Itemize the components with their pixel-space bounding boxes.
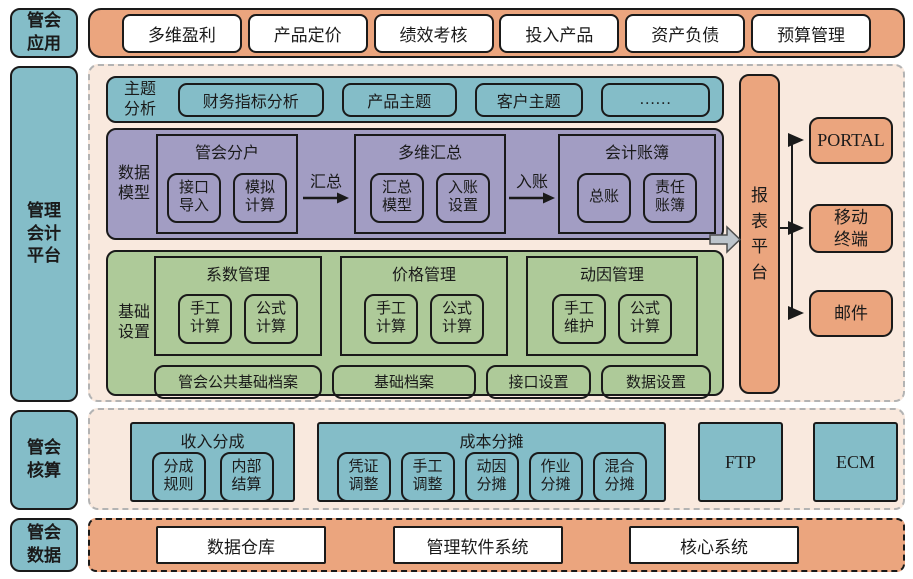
arrow-label: 汇总	[310, 174, 342, 192]
output-box-mobile-terminal: 移动 终端	[809, 204, 893, 253]
row-label-mgmt-calculation: 管会 核算	[10, 410, 78, 510]
chip-voucher-adjust: 凭证 调整	[337, 452, 391, 502]
app-box-input-product: 投入产品	[499, 14, 619, 53]
group-title: 动因管理	[580, 261, 644, 285]
chip-formula-calc: 公式 计算	[430, 294, 484, 344]
footer-item-data-setup: 数据设置	[601, 365, 711, 399]
arrow-label: 入账	[516, 174, 548, 192]
architecture-diagram: 管会 应用 管理 会计 平台 管会 核算 管会 数据 多维盈利 产品定价 绩效考…	[0, 0, 913, 579]
group-cost-allocation: 成本分摊 凭证 调整 手工 调整 动因 分摊 作业 分摊 混合 分摊	[317, 422, 666, 502]
group-title: 管会分户	[195, 139, 259, 163]
chip-formula-calc: 公式 计算	[244, 294, 298, 344]
row-label-mgmt-applications: 管会 应用	[10, 8, 78, 58]
right-arrow-icon	[509, 192, 555, 204]
theme-analysis-bar: 主题 分析 财务指标分析 产品主题 客户主题 ……	[106, 76, 724, 123]
report-output-connectors	[780, 96, 810, 346]
chip-posting-setup: 入账 设置	[436, 173, 490, 223]
platform-panel: 主题 分析 财务指标分析 产品主题 客户主题 …… 数据 模型 管会分户 接口 …	[88, 64, 905, 402]
footer-item-interface-setup: 接口设置	[486, 365, 591, 399]
applications-bar: 多维盈利 产品定价 绩效考核 投入产品 资产负债 预算管理	[88, 8, 905, 58]
chip-manual-calc: 手工 计算	[364, 294, 418, 344]
theme-analysis-label: 主题 分析	[120, 80, 160, 120]
theme-item-financial-indicators: 财务指标分析	[178, 83, 324, 117]
group-title: 系数管理	[206, 261, 270, 285]
chip-summary-model: 汇总 模型	[370, 173, 424, 223]
app-box-multidim-profit: 多维盈利	[122, 14, 242, 53]
box-ftp: FTP	[698, 422, 783, 502]
data-model-panel: 数据 模型 管会分户 接口 导入 模拟 计算 汇总 多维汇总 汇总 模型	[106, 128, 724, 240]
chip-manual-adjust: 手工 调整	[401, 452, 455, 502]
app-box-performance-eval: 绩效考核	[374, 14, 494, 53]
theme-item-customer-theme: 客户主题	[475, 83, 583, 117]
chip-sharing-rules: 分成 规则	[152, 452, 206, 502]
chip-manual-maintain: 手工 维护	[552, 294, 606, 344]
output-box-portal: PORTAL	[809, 117, 893, 164]
group-title: 价格管理	[392, 261, 456, 285]
source-box-mgmt-software-system: 管理软件系统	[393, 526, 563, 564]
group-revenue-sharing: 收入分成 分成 规则 内部 结算	[130, 422, 295, 502]
group-title: 成本分摊	[459, 428, 523, 452]
group-driver-mgmt: 动因管理 手工 维护 公式 计算	[526, 256, 698, 356]
group-coefficient-mgmt: 系数管理 手工 计算 公式 计算	[154, 256, 322, 356]
chip-internal-settlement: 内部 结算	[220, 452, 274, 502]
chip-manual-calc: 手工 计算	[178, 294, 232, 344]
base-settings-label: 基础 设置	[114, 303, 154, 343]
base-settings-panel: 基础 设置 系数管理 手工 计算 公式 计算 价格管理 手工 计算	[106, 250, 724, 396]
report-platform-bar: 报 表 平 台	[739, 74, 780, 394]
chip-simulation-calc: 模拟 计算	[233, 173, 287, 223]
right-arrow-icon	[303, 192, 349, 204]
group-title: 多维汇总	[398, 139, 462, 163]
app-box-product-pricing: 产品定价	[248, 14, 368, 53]
row-label-mgmt-accounting-platform: 管理 会计 平台	[10, 66, 78, 402]
data-sources-bar: 数据仓库 管理软件系统 核心系统	[88, 518, 905, 572]
theme-item-product-theme: 产品主题	[342, 83, 457, 117]
group-multidim-summary: 多维汇总 汇总 模型 入账 设置	[354, 134, 506, 234]
app-box-budget-mgmt: 预算管理	[751, 14, 871, 53]
chip-mixed-allocation: 混合 分摊	[593, 452, 647, 502]
flow-arrow-summarize: 汇总	[300, 174, 352, 204]
source-box-core-system: 核心系统	[629, 526, 799, 564]
source-box-data-warehouse: 数据仓库	[156, 526, 326, 564]
row-label-mgmt-data: 管会 数据	[10, 518, 78, 572]
footer-item-common-base-archive: 管会公共基础档案	[154, 365, 322, 399]
theme-item-ellipsis: ……	[601, 83, 710, 117]
chip-general-ledger: 总账	[577, 173, 631, 223]
data-model-label: 数据 模型	[114, 164, 154, 204]
footer-item-base-archive: 基础档案	[332, 365, 476, 399]
group-accounting-books: 会计账簿 总账 责任 账簿	[558, 134, 716, 234]
flow-arrow-posting: 入账	[508, 174, 556, 204]
group-mgmt-sub-ledger: 管会分户 接口 导入 模拟 计算	[156, 134, 298, 234]
chip-activity-allocation: 作业 分摊	[529, 452, 583, 502]
group-title: 会计账簿	[605, 139, 669, 163]
box-ecm: ECM	[813, 422, 898, 502]
chip-responsibility-ledger: 责任 账簿	[643, 173, 697, 223]
chip-driver-allocation: 动因 分摊	[465, 452, 519, 502]
app-box-balance-sheet: 资产负债	[625, 14, 745, 53]
accounting-panel: 收入分成 分成 规则 内部 结算 成本分摊 凭证 调整 手工 调整 动因 分摊 …	[88, 408, 905, 510]
output-box-email: 邮件	[809, 290, 893, 337]
chip-interface-import: 接口 导入	[167, 173, 221, 223]
chip-formula-calc: 公式 计算	[618, 294, 672, 344]
group-price-mgmt: 价格管理 手工 计算 公式 计算	[340, 256, 508, 356]
group-title: 收入分成	[180, 428, 244, 452]
block-arrow-to-report-platform-icon	[709, 225, 741, 254]
